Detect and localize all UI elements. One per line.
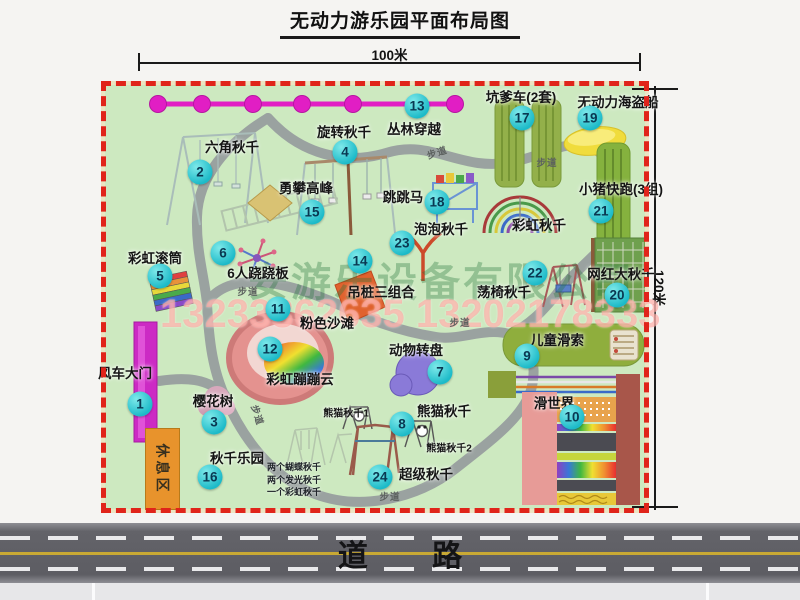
- badge-14: 14: [348, 249, 373, 274]
- dimension-width-tick-left: [138, 53, 140, 71]
- label-cherry-tree: 樱花树: [193, 390, 234, 410]
- page-title-text: 无动力游乐园平面布局图: [280, 6, 520, 39]
- path-label: 步道: [237, 284, 258, 298]
- park-layout-screenshot: 无动力游乐园平面布局图 100米 120米: [0, 0, 800, 600]
- badge-15: 15: [300, 200, 325, 225]
- badge-5: 5: [148, 264, 173, 289]
- swing-park-note-line: 两个发光秋千: [267, 474, 321, 487]
- path-label: 步道: [449, 315, 470, 329]
- label-rainbow-swing: 彩虹秋千: [512, 214, 566, 234]
- badge-22: 22: [523, 261, 548, 286]
- path-label: 步道: [379, 489, 400, 503]
- badge-24: 24: [368, 465, 393, 490]
- badge-7: 7: [428, 360, 453, 385]
- badge-23: 23: [390, 231, 415, 256]
- label-swing-chair: 荡椅秋千: [477, 281, 531, 301]
- badge-4: 4: [333, 140, 358, 165]
- label-panda-swing: 熊猫秋千: [417, 400, 471, 420]
- badge-19: 19: [578, 106, 603, 131]
- road-curb: [0, 583, 800, 600]
- swing-park-notes: 两个蝴蝶秋千 两个发光秋千 一个彩虹秋千: [267, 461, 321, 499]
- curb-seam: [706, 583, 709, 600]
- label-pink-beach: 粉色沙滩: [300, 312, 354, 332]
- swing-park-note-line: 两个蝴蝶秋千: [267, 461, 321, 474]
- label-climbing-peak: 勇攀高峰: [279, 177, 333, 197]
- road: 道 路: [0, 523, 800, 583]
- zipline-ball-icon: [245, 96, 262, 113]
- label-windmill-gate: 风车大门: [98, 362, 152, 382]
- rest-area-label: 休息区: [153, 444, 173, 495]
- badge-3: 3: [202, 410, 227, 435]
- label-swing-park: 秋千乐园: [210, 447, 264, 467]
- label-hanging-combo: 吊桩三组合: [347, 281, 415, 301]
- label-seesaw: 6人跷跷板: [227, 262, 289, 282]
- badge-21: 21: [589, 199, 614, 224]
- rest-area-box: 休息区: [145, 428, 180, 510]
- badge-13: 13: [405, 94, 430, 119]
- label-net-swing: 网红大秋千: [587, 263, 655, 283]
- dimension-width-line: [138, 62, 641, 64]
- curb-seam: [92, 583, 95, 600]
- swing-park-note-line: 一个彩虹秋千: [267, 486, 321, 499]
- dimension-width-tick-right: [639, 53, 641, 71]
- label-pit-cars: 坑爹车(2套): [486, 86, 557, 106]
- badge-2: 2: [188, 160, 213, 185]
- badge-6: 6: [211, 241, 236, 266]
- label-super-swing: 超级秋千: [399, 463, 453, 483]
- label-panda-swing-1: 熊猫秋千1: [323, 405, 369, 420]
- road-label: 道 路: [0, 523, 800, 583]
- badge-11: 11: [266, 297, 291, 322]
- label-animal-carousel: 动物转盘: [389, 339, 443, 359]
- dimension-width-label: 100米: [138, 44, 641, 64]
- zipline-ball-icon: [194, 96, 211, 113]
- label-rotating-swing: 旋转秋千: [317, 121, 371, 141]
- badge-1: 1: [128, 392, 153, 417]
- zipline-ball-icon: [150, 96, 167, 113]
- label-panda-swing-2: 熊猫秋千2: [426, 440, 472, 455]
- label-jumping-horse: 跳跳马: [383, 186, 424, 206]
- zipline-ball-icon: [447, 96, 464, 113]
- windmill-gate-structure: [134, 322, 157, 442]
- zipline-ball-icon: [345, 96, 362, 113]
- badge-8: 8: [390, 412, 415, 437]
- badge-10: 10: [560, 405, 585, 430]
- label-jungle-crossing: 丛林穿越: [387, 118, 441, 138]
- badge-18: 18: [425, 190, 450, 215]
- label-bounce-cloud: 彩虹蹦蹦云: [266, 368, 334, 388]
- badge-20: 20: [605, 283, 630, 308]
- label-piggy-run: 小猪快跑(3组): [579, 178, 663, 198]
- badge-12: 12: [258, 337, 283, 362]
- page-title: 无动力游乐园平面布局图: [0, 6, 800, 39]
- swing-park-sketch: [287, 428, 352, 465]
- label-bubble-swing: 泡泡秋千: [414, 218, 468, 238]
- badge-9: 9: [515, 344, 540, 369]
- dimension-height-tick-bottom: [632, 506, 678, 508]
- label-hexagon-swing: 六角秋千: [205, 136, 259, 156]
- label-kids-zipline: 儿童滑索: [530, 329, 584, 349]
- badge-17: 17: [510, 106, 535, 131]
- path-label: 步道: [536, 155, 557, 169]
- dimension-height-tick-top: [632, 88, 678, 90]
- badge-16: 16: [198, 465, 223, 490]
- zipline-ball-icon: [294, 96, 311, 113]
